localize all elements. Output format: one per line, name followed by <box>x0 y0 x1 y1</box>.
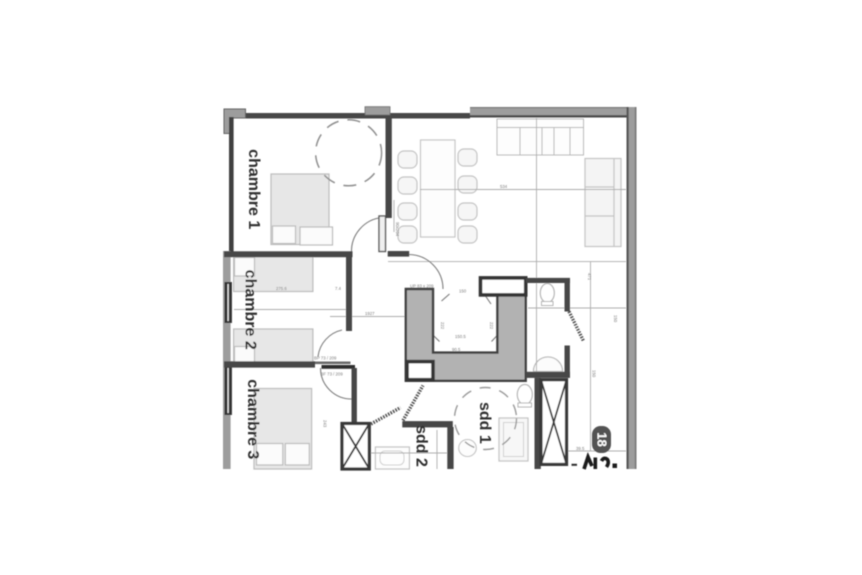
svg-text:39.5: 39.5 <box>576 446 585 451</box>
svg-text:chambre 2: chambre 2 <box>241 270 258 350</box>
svg-text:90x204: 90x204 <box>395 222 400 237</box>
svg-text:7.4: 7.4 <box>335 286 342 291</box>
svg-text:BF 73 / 209: BF 73 / 209 <box>321 372 344 377</box>
svg-text:18: 18 <box>594 432 609 446</box>
svg-text:471: 471 <box>587 273 592 281</box>
svg-text:sdd 2: sdd 2 <box>413 425 430 467</box>
svg-text:534: 534 <box>500 184 508 189</box>
svg-text:UP 83 x 209: UP 83 x 209 <box>410 284 434 289</box>
svg-text:chambre 3: chambre 3 <box>244 379 261 459</box>
svg-text:150: 150 <box>459 289 467 294</box>
svg-text:150: 150 <box>613 315 618 323</box>
svg-text:90.5: 90.5 <box>452 347 461 352</box>
svg-text:150.5: 150.5 <box>455 334 466 339</box>
svg-text:243: 243 <box>322 420 327 428</box>
svg-text:150: 150 <box>592 370 597 378</box>
svg-text:222: 222 <box>489 322 494 330</box>
svg-text:chambre 1: chambre 1 <box>245 149 262 229</box>
svg-text:sdd 1: sdd 1 <box>476 402 493 444</box>
svg-text:275.6: 275.6 <box>276 286 287 291</box>
svg-text:222: 222 <box>440 322 445 330</box>
svg-text:1927: 1927 <box>365 311 375 316</box>
svg-text:BP 73 / 209: BP 73 / 209 <box>314 356 337 361</box>
